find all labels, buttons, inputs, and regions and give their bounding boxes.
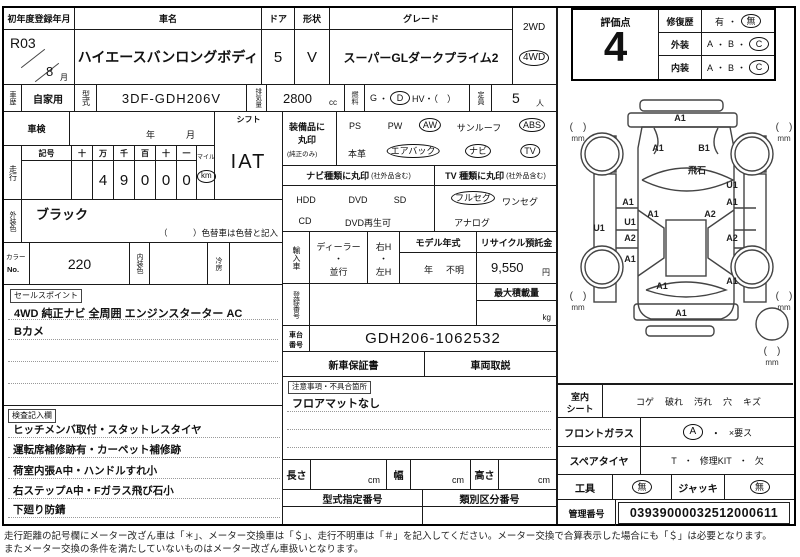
repair-yes: 有 [715, 15, 724, 28]
nav-hdd: HDD [296, 195, 316, 205]
import-dot: ・ [310, 252, 367, 265]
handle-cell: 右H ・ 左H [368, 232, 400, 284]
inspection-note-line: 荷室内張A中・ハンドルすれ小 [13, 463, 157, 478]
height-label: 高さ [471, 460, 499, 490]
car-name-value: ハイエースバンロングボディ [75, 30, 262, 85]
equipment-label3: (純正のみ) [287, 148, 317, 158]
color-no-label1: カラー [6, 251, 26, 261]
auction-sheet: 初年度登録年月 車名 ドア 形状 グレード 2WD 4WD R03 8 月 ハイ… [0, 0, 800, 557]
warranty-cell: 新車保証書 [283, 352, 425, 377]
first-reg-era: R03 [10, 35, 36, 51]
seat-item: 破れ [665, 395, 683, 408]
color-change-note: （ ）色替車は色替と記入 [159, 227, 278, 239]
damage-mark: U1 [726, 180, 738, 190]
damage-mark: B1 [698, 143, 710, 153]
model-year-value: 不明 [446, 263, 464, 276]
notes-section: 注意事項・不具合箇所 フロアマットなし [283, 377, 557, 460]
tv-analog: アナログ [454, 216, 490, 229]
shaken-cell: 年 月 [70, 112, 215, 146]
spare-t: T [671, 456, 677, 466]
interior-color-value [150, 243, 208, 285]
grade-c-selected: C [749, 60, 769, 74]
shift-label: シフト [215, 112, 283, 126]
history-value: 自家用 [22, 85, 75, 112]
mm-measure-label: ( )mm [570, 122, 587, 143]
fuel-cell: G ・ D HV・（ ） [365, 85, 470, 112]
odometer-unit-cell: マイル km [197, 146, 215, 200]
drive-type-cell: 2WD 4WD [513, 8, 557, 85]
damage-mark: A1 [647, 209, 659, 219]
car-diagram: A1A1B1飛石U1A1A1A1A2U1U1A2A2A1A1A1A1( )mm(… [558, 88, 800, 382]
damage-mark: A1 [652, 143, 664, 153]
exterior-color-label: 外装色 [4, 200, 22, 243]
inspection-note-line: 下廻り防錆 [13, 502, 66, 517]
grade-c-selected: C [749, 37, 769, 51]
tv-type-header: TV 種類に丸印 (社外品含む) [435, 166, 557, 186]
ac-value [230, 243, 283, 285]
tools-value: 無 [613, 475, 672, 500]
control-no-value: 03939000032512000611 [618, 502, 790, 524]
length-unit: cm [368, 475, 380, 485]
digit-header: 十 [156, 146, 177, 161]
seat-label2: シート [558, 402, 602, 415]
front-glass-a-selected: A [683, 424, 703, 440]
tv-fullseg-selected: フルセグ [451, 191, 495, 205]
nav-dvd: DVD [348, 195, 367, 205]
mm-measure-label: ( )mm [764, 346, 781, 367]
equipment-items: PS PW AW サンルーフ ABS 本革 エアバック ナビ TV [337, 112, 557, 166]
drive-2wd: 2WD [523, 22, 545, 33]
nav-type-header-note: (社外品含む) [371, 171, 411, 181]
equip-navi-selected: ナビ [465, 144, 491, 158]
color-no-label2: No. [7, 265, 19, 274]
inspection-notes-section: 検査記入欄 ヒッチメンバ取付・スタットレスタイヤ 運転席補修跡有・カーペット補修… [4, 405, 283, 524]
import-dealer-cell: ディーラー ・ 並行 [310, 232, 368, 284]
fuel-diesel-selected: D [390, 91, 410, 105]
type-designation-header: 型式指定番号 [283, 490, 423, 507]
fuel-gas: G [370, 93, 377, 103]
interior-color-label: 内装色 [130, 243, 150, 285]
recycle-unit: 円 [542, 267, 550, 278]
damage-mark: U1 [593, 223, 605, 233]
equipment-label1: 装備品に [289, 120, 325, 133]
seat-items: コゲ 破れ 汚れ 穴 キズ [603, 385, 794, 418]
odometer-digit: 0 [156, 161, 177, 200]
door-value: 5 [262, 30, 295, 85]
grade-b: B [728, 63, 734, 73]
first-reg-month: 8 [46, 64, 53, 79]
shape-value: V [295, 30, 330, 85]
inspection-notes-label: 検査記入欄 [8, 409, 56, 423]
registration-label: 登録番号 [283, 284, 310, 326]
car-name-header: 車名 [75, 8, 262, 30]
damage-mark: A1 [726, 197, 738, 207]
damage-mark: U1 [624, 217, 636, 227]
width-unit: cm [452, 475, 464, 485]
equip-ps: PS [349, 121, 361, 131]
color-no-value: 220 [30, 243, 130, 285]
car-diagram-outline [558, 88, 800, 382]
equip-leather: 本革 [348, 147, 366, 160]
drive-4wd-selected: 4WD [519, 50, 549, 66]
seat-item: コゲ [636, 395, 654, 408]
capacity-cell: 5 人 [492, 85, 557, 112]
shift-value: IAT [215, 126, 283, 200]
manual-cell: 車両取説 [425, 352, 557, 377]
front-glass-label: フロントガラス [558, 418, 641, 447]
model-code-label: 型式 [75, 85, 97, 112]
shaken-label: 車検 [4, 112, 70, 146]
equipment-label-cell: 装備品に 丸印 (純正のみ) [283, 112, 337, 166]
shaken-month-unit: 月 [186, 128, 195, 141]
capacity-value: 5 [512, 90, 520, 106]
grade-dot: ・ [737, 61, 746, 74]
max-load-cell: 最大積載量 kg [477, 284, 557, 326]
grade-a: A [707, 63, 713, 73]
repair-dot: ・ [728, 15, 737, 28]
tools-none-selected: 無 [632, 480, 652, 494]
displacement-cell: 2800 cc [267, 85, 345, 112]
sales-points-section: セールスポイント 4WD 純正ナビ 全周囲 エンジンスターター AC Bカメ [4, 285, 283, 405]
mile-label: マイル [197, 152, 215, 161]
max-load-unit: kg [543, 313, 551, 322]
odometer-symbol-value [22, 161, 72, 200]
max-load-header: 最大積載量 [477, 284, 556, 301]
model-year-cell: 年 不明 [400, 253, 477, 284]
width-value: cm [411, 460, 471, 490]
equipment-label2: 丸印 [298, 133, 316, 146]
nav-sd: SD [394, 195, 407, 205]
exterior-color-value: ブラック [36, 204, 88, 223]
length-label: 長さ [283, 460, 311, 490]
equip-pw: PW [388, 121, 403, 131]
capacity-label: 定員 [470, 85, 492, 112]
notes-line1: フロアマットなし [292, 395, 380, 411]
equip-abs-selected: ABS [519, 118, 545, 132]
displacement-unit: cc [329, 98, 337, 107]
tv-type-header-text: TV 種類に丸印 [445, 169, 504, 182]
seat-item: キズ [743, 395, 761, 408]
displacement-label: 排気量 [247, 85, 267, 112]
mm-measure-label: ( )mm [776, 291, 793, 312]
odometer-digit [72, 161, 93, 200]
slash-line [21, 49, 45, 68]
sales-points-line2: Bカメ [14, 323, 44, 339]
classification-value [423, 507, 557, 524]
interior-grade-label: 内装 [659, 56, 702, 79]
spare-missing: 欠 [755, 454, 764, 467]
damage-mark: 飛石 [688, 164, 706, 177]
digit-header: 万 [93, 146, 114, 161]
displacement-value: 2800 [283, 91, 312, 106]
odometer-digit: 0 [177, 161, 197, 200]
nav-dvd-play: DVD再生可 [345, 216, 391, 229]
nav-cd: CD [299, 216, 312, 226]
jack-label: ジャッキ [672, 475, 725, 500]
jack-value: 無 [725, 475, 794, 500]
damage-mark: A2 [624, 233, 636, 243]
condition-panel: 室内 シート コゲ 破れ 汚れ 穴 キズ フロントガラス A ・ ×要ス スペア… [557, 383, 793, 524]
tv-type-items: フルセグ ワンセグ アナログ [435, 186, 557, 232]
fuel-label: 燃料 [345, 85, 365, 112]
equip-tv-selected: TV [520, 144, 540, 158]
classification-header: 類別区分番号 [423, 490, 557, 507]
width-label: 幅 [387, 460, 411, 490]
odometer-label: 走行 [4, 146, 22, 200]
spare-dot: ・ [739, 454, 748, 467]
front-glass-value: A ・ ×要ス [641, 418, 794, 447]
mm-measure-label: ( )mm [776, 122, 793, 143]
grade-a: A [707, 39, 713, 49]
exterior-grade-value: A ・ B ・ C [702, 33, 774, 56]
digit-header: 一 [177, 146, 197, 161]
grade-b: B [728, 39, 734, 49]
chassis-label1: 車台 [283, 330, 309, 340]
front-glass-rest: ×要ス [729, 426, 752, 439]
control-no-label: 管理番号 [558, 500, 616, 526]
history-label: 車歴 [4, 85, 22, 112]
height-value: cm [499, 460, 557, 490]
spare-tire-label: スペアタイヤ [558, 447, 641, 475]
fuel-hv: HV・（ ） [412, 92, 456, 105]
damage-mark: A1 [624, 254, 636, 264]
grade-dot: ・ [737, 38, 746, 51]
spare-kit: 修理KIT [700, 454, 732, 467]
recycle-value: 9,550 [491, 260, 524, 275]
notes-label: 注意事項・不具合箇所 [288, 381, 371, 394]
shaken-year-unit: 年 [146, 128, 155, 141]
tv-oneseg: ワンセグ [502, 195, 538, 208]
equip-aw-selected: AW [419, 118, 441, 132]
grade-dot: ・ [716, 38, 725, 51]
tv-type-header-note: (社外品含む) [506, 171, 546, 181]
spare-dot: ・ [684, 454, 693, 467]
exterior-color-cell: ブラック （ ）色替車は色替と記入 [22, 200, 283, 243]
spare-tire-value: T ・ 修理KIT ・ 欠 [641, 447, 794, 475]
km-selected: km [197, 170, 216, 183]
repair-history-label: 修復歴 [659, 10, 702, 33]
shape-header: 形状 [295, 8, 330, 30]
registration-value [310, 284, 477, 326]
damage-mark: A1 [656, 281, 668, 291]
fuel-dot: ・ [379, 92, 388, 105]
recycle-header: リサイクル預託金 [477, 232, 557, 253]
import-parallel: 並行 [310, 265, 367, 278]
nav-type-header-text: ナビ種類に丸印 [306, 169, 369, 182]
inspection-note-line: 運転席補修跡有・カーペット補修跡 [13, 442, 181, 457]
sales-points-label: セールスポイント [10, 289, 82, 303]
nav-type-items: HDD DVD SD CD DVD再生可 [283, 186, 435, 232]
equip-sunroof: サンルーフ [457, 121, 501, 134]
month-unit: 月 [60, 72, 68, 83]
grade-dot: ・ [716, 61, 725, 74]
damage-mark: A1 [675, 308, 687, 318]
rating-score-cell: 評価点 4 [573, 10, 659, 79]
jack-none-selected: 無 [750, 480, 770, 494]
digit-header: 百 [135, 146, 156, 161]
chassis-label2: 番号 [283, 340, 309, 350]
first-reg-cell: R03 8 月 [4, 30, 75, 85]
color-no-label: カラー No. [4, 243, 30, 285]
type-designation-value [283, 507, 423, 524]
rating-box: 評価点 4 修復歴 有 ・ 無 外装 A ・ B ・ C 内装 A ・ B ・ … [571, 8, 776, 81]
footer-note-line2: またメーター交換の条件を満たしていないものはメーター改ざん車扱いとなります。 [4, 543, 796, 557]
equip-airbag-selected: エアバック [387, 144, 440, 158]
inspection-note-line: ヒッチメンバ取付・スタットレスタイヤ [13, 422, 202, 437]
mm-measure-label: ( )mm [570, 291, 587, 312]
odometer-digit: 4 [93, 161, 114, 200]
tools-label: 工具 [558, 475, 613, 500]
footer-note-line1: 走行距離の記号欄にメーター改ざん車は「＊」、メーター交換車は「＄」、走行不明車は… [4, 530, 796, 544]
digit-header: 千 [114, 146, 135, 161]
front-glass-dot: ・ [711, 425, 721, 440]
damage-mark: A2 [726, 233, 738, 243]
grade-header: グレード [330, 8, 513, 30]
chassis-label: 車台 番号 [283, 326, 310, 352]
exterior-grade-label: 外装 [659, 33, 702, 56]
damage-mark: A2 [704, 209, 716, 219]
rating-score: 4 [573, 24, 658, 70]
repair-no-selected: 無 [741, 14, 761, 28]
door-header: ドア [262, 8, 295, 30]
damage-mark: A1 [622, 197, 634, 207]
model-year-unit: 年 [424, 263, 433, 276]
damage-mark: A1 [674, 113, 686, 123]
import-label: 輸入車 [283, 232, 310, 284]
recycle-cell: 9,550 円 [477, 253, 557, 284]
odometer-digit: 0 [135, 161, 156, 200]
odometer-digit: 9 [114, 161, 135, 200]
damage-mark: A1 [726, 276, 738, 286]
handle-dot: ・ [368, 252, 399, 265]
model-year-header: モデル年式 [400, 232, 477, 253]
ac-label: 冷房 [208, 243, 230, 285]
odometer-symbol-header: 記号 [22, 146, 72, 161]
height-unit: cm [538, 475, 550, 485]
repair-history-value: 有 ・ 無 [702, 10, 774, 33]
nav-type-header: ナビ種類に丸印 (社外品含む) [283, 166, 435, 186]
chassis-value: GDH206-1062532 [310, 326, 557, 352]
length-value: cm [311, 460, 387, 490]
seat-item: 穴 [723, 395, 732, 408]
handle-left: 左H [368, 265, 399, 278]
model-code-value: 3DF-GDH206V [97, 85, 247, 112]
interior-grade-value: A ・ B ・ C [702, 56, 774, 79]
digit-header: 十 [72, 146, 93, 161]
inspection-note-line: 右ステップA中・Fガラス飛び石小 [13, 483, 174, 498]
seat-label: 室内 シート [558, 385, 603, 418]
grade-value: スーパーGLダークプライム2 [330, 30, 513, 85]
capacity-unit: 人 [536, 98, 544, 109]
seat-item: 汚れ [694, 395, 712, 408]
first-reg-header: 初年度登録年月 [4, 8, 75, 30]
